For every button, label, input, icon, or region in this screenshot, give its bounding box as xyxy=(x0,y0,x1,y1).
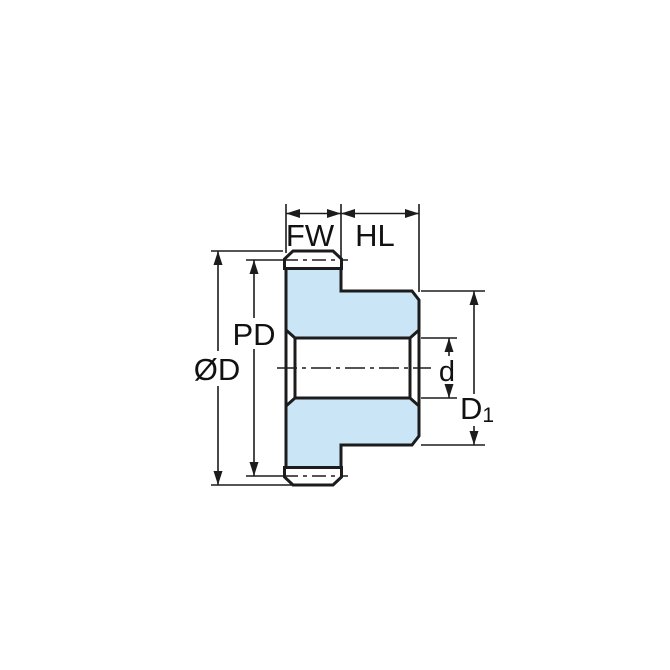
gear-dimension-diagram: FW HL ØD PD d D1 xyxy=(0,0,670,670)
label-hub-diameter: D1 xyxy=(460,391,494,427)
diagram-canvas: FW HL ØD PD d D1 xyxy=(0,0,670,670)
label-hub-diameter-subscript: 1 xyxy=(482,404,494,427)
label-hub-diameter-base: D xyxy=(460,391,482,426)
label-bore-diameter: d xyxy=(439,356,455,388)
label-outside-diameter: ØD xyxy=(194,352,241,387)
gear-body-upper-section xyxy=(286,269,419,339)
gear-body-lower-section xyxy=(286,398,419,468)
label-face-width: FW xyxy=(286,218,335,253)
label-hub-length: HL xyxy=(355,218,395,253)
label-pitch-diameter: PD xyxy=(232,317,275,352)
